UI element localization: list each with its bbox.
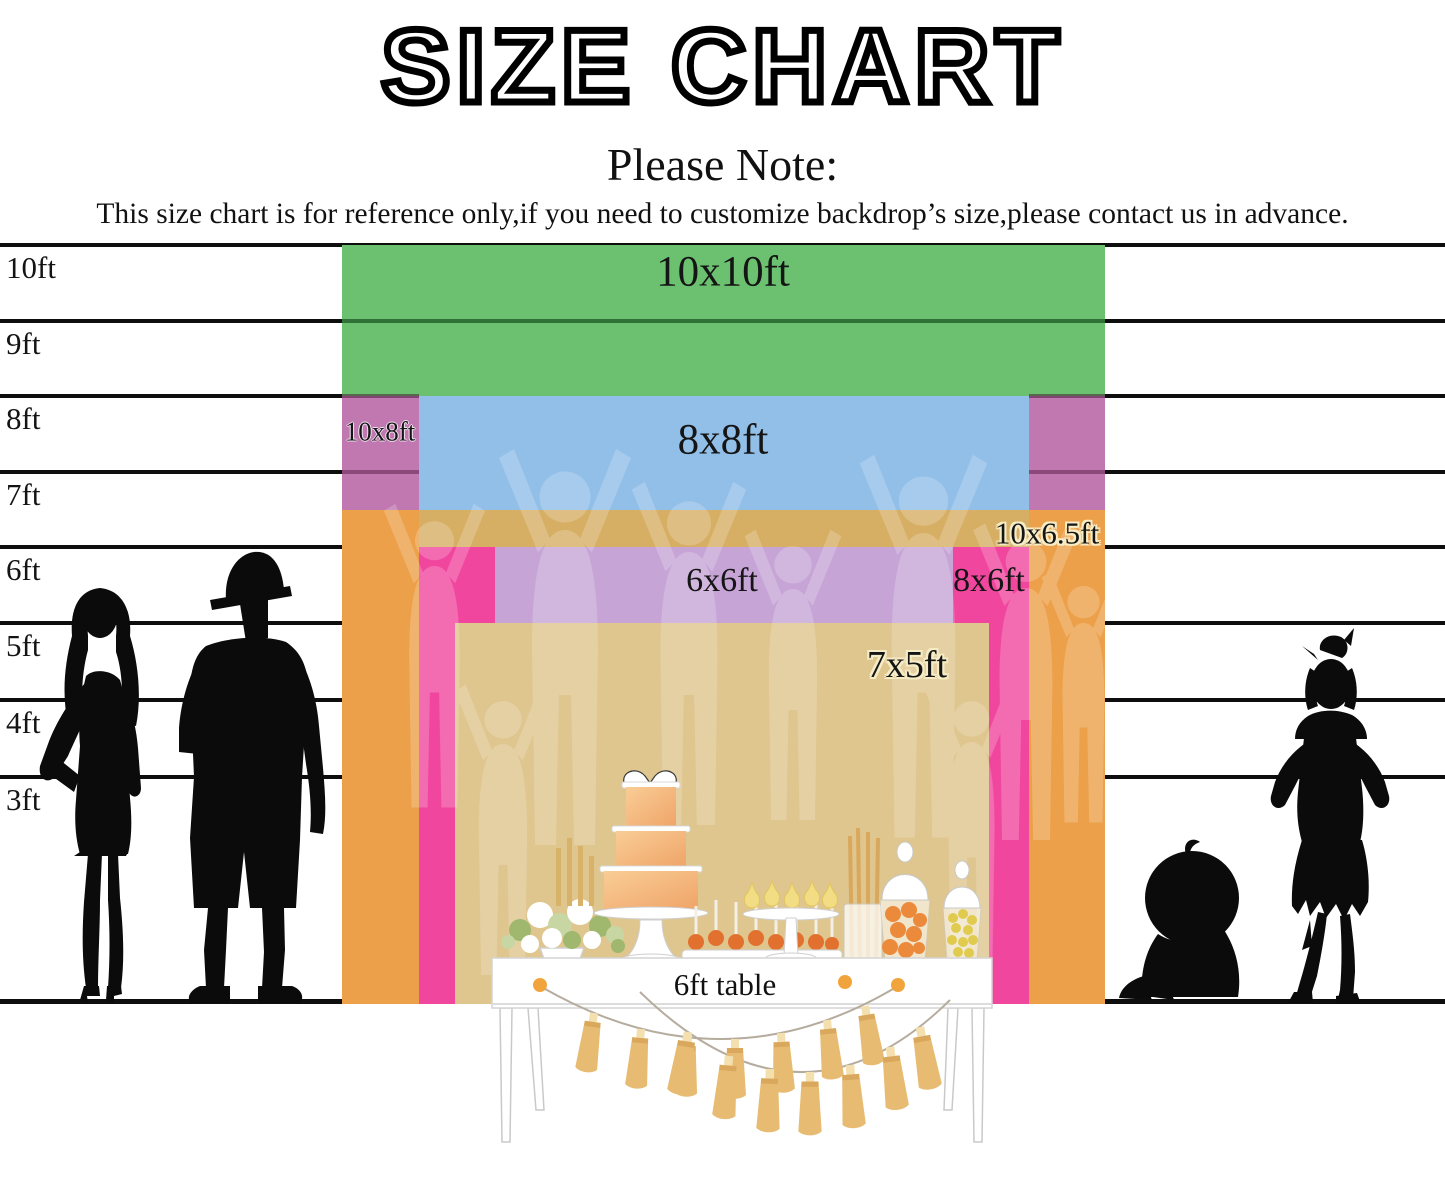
silhouette-left-group	[0, 540, 345, 1010]
size-chart-infographic: SIZE CHART Please Note: This size chart …	[0, 0, 1445, 1202]
note-body: This size chart is for reference only,if…	[0, 198, 1445, 231]
table-caption: 6ft table	[674, 967, 776, 1003]
ruler-label-7ft: 7ft	[6, 479, 40, 510]
silhouette-right-group	[1100, 620, 1445, 1010]
silhouette-sitting-baby	[1119, 840, 1239, 1000]
ruler-line-8ft-through-purple-left	[342, 394, 419, 398]
ruler-label-8ft: 8ft	[6, 403, 40, 434]
cake-pops	[682, 898, 842, 960]
candy-jar-orange	[880, 842, 930, 962]
page-title: SIZE CHART	[381, 9, 1065, 125]
backdrop-label-10x8: 10x8ft	[345, 419, 416, 446]
backdrop-label-7x5: 7x5ft	[867, 646, 947, 684]
silhouette-young-girl	[1271, 628, 1390, 1004]
page-title-wrap: SIZE CHART	[0, 4, 1445, 126]
backdrop-label-10x10: 10x10ft	[656, 251, 790, 294]
silhouette-adult-woman	[40, 588, 141, 1003]
dessert-table-illustration	[430, 740, 1070, 1170]
backdrop-label-6x6: 6x6ft	[686, 564, 758, 598]
title-art: SIZE CHART	[343, 4, 1103, 126]
ruler-line-9ft-through-green	[342, 319, 1105, 323]
ruler-label-9ft: 9ft	[6, 328, 40, 359]
ruler-line-8ft-through-purple-right	[1029, 394, 1105, 398]
candles	[556, 838, 594, 906]
note-heading: Please Note:	[0, 138, 1445, 191]
backdrop-label-8x6: 8x6ft	[953, 564, 1025, 598]
backdrop-label-8x8: 8x8ft	[678, 419, 769, 462]
silhouette-adult-man	[179, 552, 325, 1003]
ruler-label-10ft: 10ft	[6, 252, 56, 283]
breadstick-jar	[844, 828, 882, 960]
candy-jar-yellow	[943, 861, 981, 962]
backdrop-label-10x6.5: 10x6.5ft	[995, 518, 1099, 549]
